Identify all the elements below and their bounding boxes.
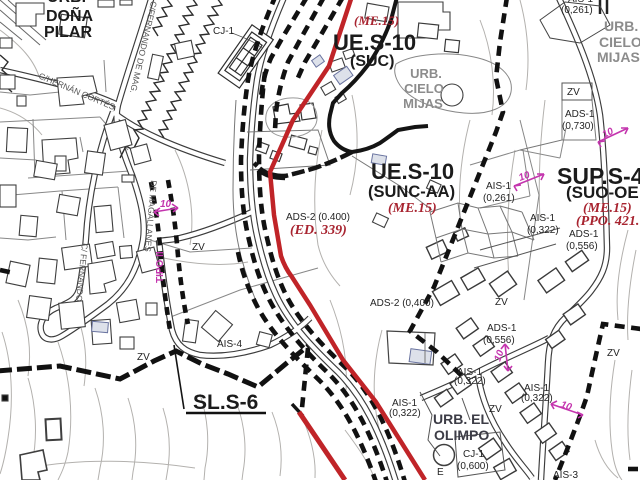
- svg-text:(0,322): (0,322): [389, 408, 421, 419]
- svg-text:(0,730): (0,730): [562, 121, 594, 132]
- svg-text:(0,600): (0,600): [457, 461, 489, 472]
- svg-text:CIELO: CIELO: [599, 34, 640, 50]
- svg-text:DOÑA: DOÑA: [46, 5, 94, 25]
- svg-text:(0,322): (0,322): [521, 393, 553, 404]
- svg-text:URB. EL: URB. EL: [433, 411, 489, 427]
- svg-text:URB.: URB.: [604, 18, 638, 34]
- svg-text:URB.: URB.: [47, 0, 86, 6]
- svg-text:ADS-1: ADS-1: [487, 323, 517, 334]
- svg-text:AIS-3: AIS-3: [553, 470, 578, 480]
- svg-text:UE.S-10: UE.S-10: [371, 159, 454, 184]
- svg-text:PILAR: PILAR: [44, 24, 92, 41]
- svg-text:(ED. 339): (ED. 339): [290, 223, 347, 238]
- svg-text:10: 10: [160, 199, 172, 210]
- svg-text:AIS-1: AIS-1: [486, 181, 511, 192]
- svg-text:(0,556): (0,556): [566, 241, 598, 252]
- svg-text:AIS-1: AIS-1: [530, 213, 555, 224]
- svg-text:CIELO: CIELO: [404, 81, 444, 96]
- svg-text:(0,556): (0,556): [483, 335, 515, 346]
- svg-text:CJ-1: CJ-1: [463, 449, 485, 460]
- svg-text:ZV: ZV: [495, 297, 508, 308]
- svg-text:ZV: ZV: [567, 87, 580, 98]
- svg-text:(ME.15): (ME.15): [388, 201, 437, 216]
- svg-text:(0,322): (0,322): [454, 376, 486, 387]
- svg-text:(SUO-OE: (SUO-OE: [566, 183, 639, 202]
- svg-text:ZV: ZV: [137, 352, 150, 363]
- svg-text:(0,261): (0,261): [483, 193, 515, 204]
- svg-text:ZV: ZV: [607, 348, 620, 359]
- svg-text:ADS-1: ADS-1: [569, 229, 599, 240]
- svg-text:ADS-1: ADS-1: [565, 109, 595, 120]
- svg-text:AIS-4: AIS-4: [217, 339, 242, 350]
- svg-text:URB.: URB.: [410, 66, 442, 81]
- svg-text:ADS-2 (0,400): ADS-2 (0,400): [370, 298, 434, 309]
- svg-text:(ME.15): (ME.15): [354, 13, 399, 28]
- svg-text:(PPO. 421.: (PPO. 421.: [576, 214, 639, 229]
- svg-text:ZV: ZV: [192, 242, 205, 253]
- svg-text:SL.S-6: SL.S-6: [193, 391, 258, 414]
- svg-text:ZV: ZV: [489, 404, 502, 415]
- svg-text:TIPO II: TIPO II: [155, 251, 166, 283]
- svg-text:CJ-1: CJ-1: [213, 26, 235, 37]
- svg-text:E: E: [437, 467, 444, 478]
- svg-text:(0,322): (0,322): [527, 225, 559, 236]
- svg-text:ADS-2 (0.400): ADS-2 (0.400): [286, 212, 350, 223]
- svg-text:OLIMPO: OLIMPO: [434, 427, 489, 443]
- svg-text:(0,261): (0,261): [561, 5, 593, 16]
- svg-text:(SUNC-AA): (SUNC-AA): [368, 183, 455, 201]
- svg-text:MIJAS: MIJAS: [597, 49, 640, 65]
- svg-text:UE.S-10: UE.S-10: [333, 30, 416, 55]
- svg-text:(SUC): (SUC): [350, 53, 394, 70]
- svg-text:MIJAS: MIJAS: [403, 96, 443, 111]
